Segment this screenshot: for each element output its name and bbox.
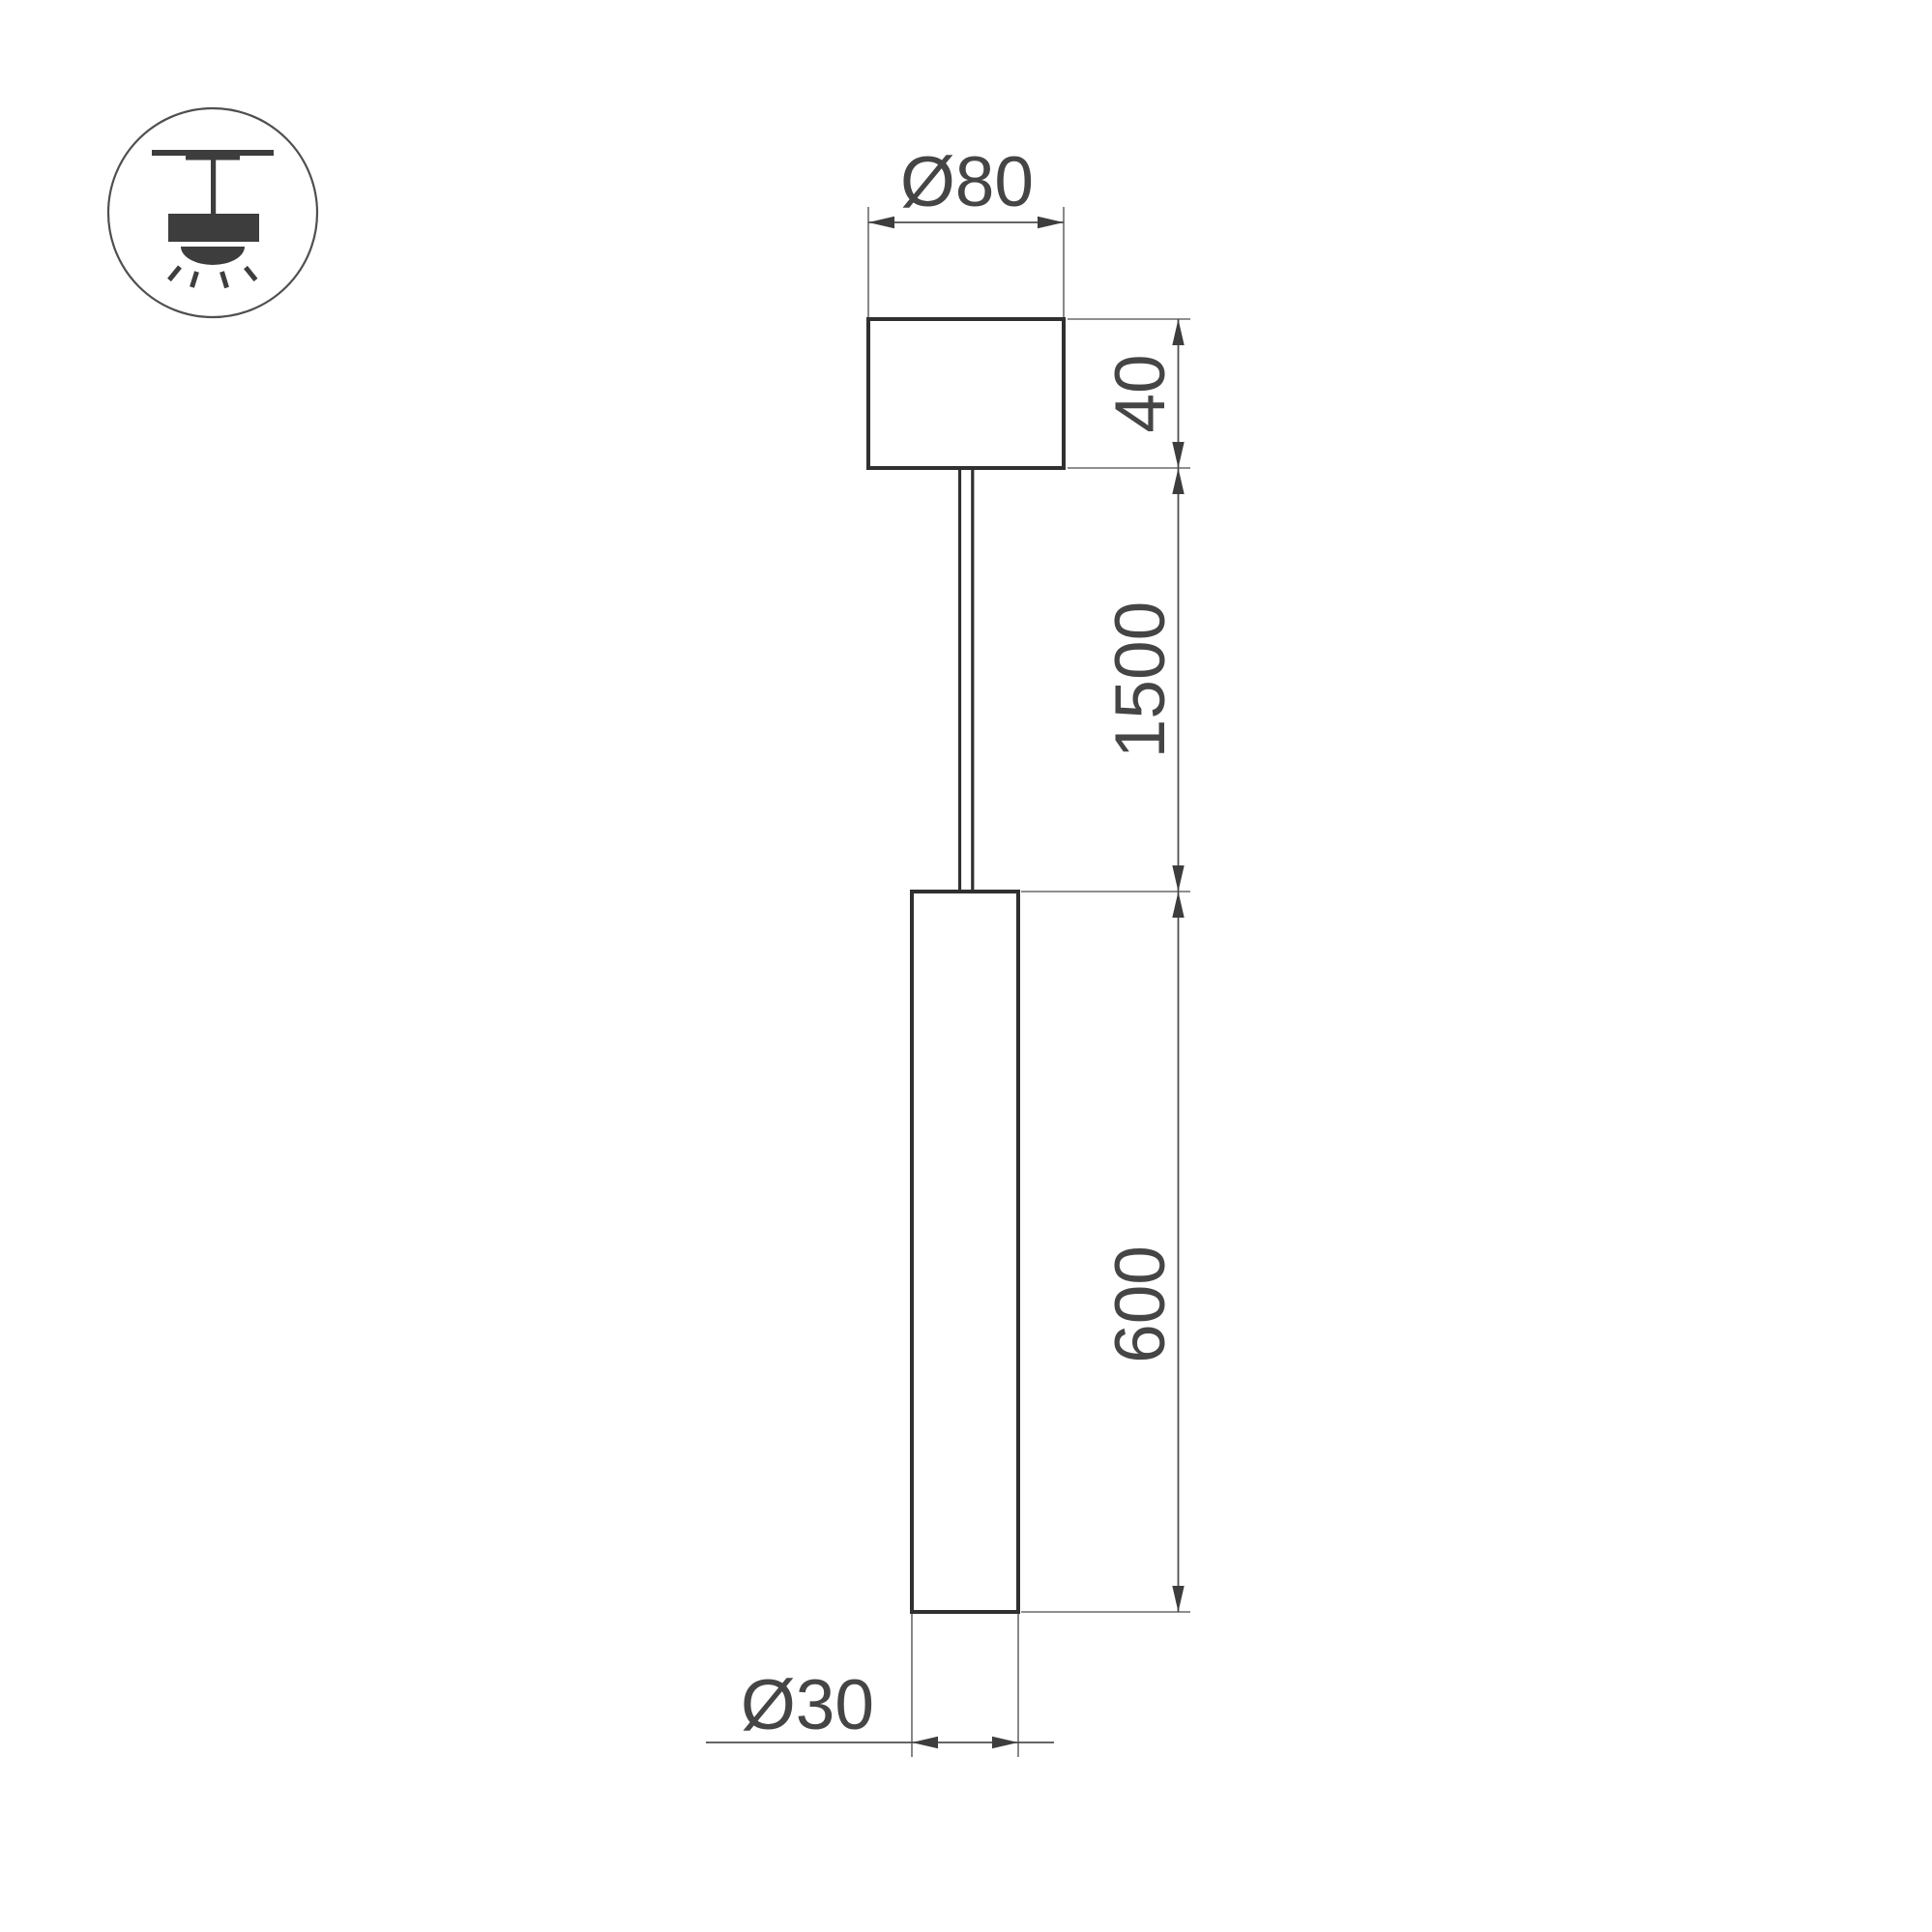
- arrow-down-icon: [1172, 1586, 1184, 1612]
- arrow-down-icon: [1172, 442, 1184, 468]
- drawing-page: Ø80 40 1500 600: [0, 0, 1932, 1932]
- arrow-right-icon: [992, 1737, 1018, 1748]
- tube-outline: [912, 892, 1018, 1612]
- dimension-label-suspension-length: 1500: [1101, 601, 1180, 758]
- icon-lamp-housing: [168, 214, 259, 242]
- arrow-up-icon: [1172, 468, 1184, 494]
- arrow-left-icon: [868, 217, 894, 228]
- dimension-tube-diameter: Ø30: [706, 1614, 1054, 1757]
- dimension-label-tube-length: 600: [1101, 1245, 1180, 1363]
- canopy-outline: [868, 319, 1064, 468]
- arrow-up-icon: [1172, 319, 1184, 345]
- dimension-label: Ø80: [900, 143, 1034, 221]
- dimension-label: Ø30: [741, 1666, 874, 1744]
- arrow-up-icon: [1172, 892, 1184, 918]
- dimension-vertical-chain: 40 1500 600: [1021, 319, 1190, 1612]
- dimension-label-canopy-height: 40: [1101, 354, 1180, 432]
- icon-stem: [211, 160, 216, 215]
- arrow-down-icon: [1172, 865, 1184, 892]
- icon-ceiling-line: [152, 150, 274, 156]
- pendant-light-icon: [108, 108, 317, 317]
- arrow-right-icon: [1038, 217, 1064, 228]
- arrow-left-icon: [912, 1737, 938, 1748]
- dimension-canopy-diameter: Ø80: [868, 143, 1064, 317]
- pendant-lamp-technical-drawing: Ø80 40 1500 600: [0, 0, 1932, 1932]
- icon-mount-plate: [186, 156, 240, 161]
- lamp-body: [868, 319, 1064, 1612]
